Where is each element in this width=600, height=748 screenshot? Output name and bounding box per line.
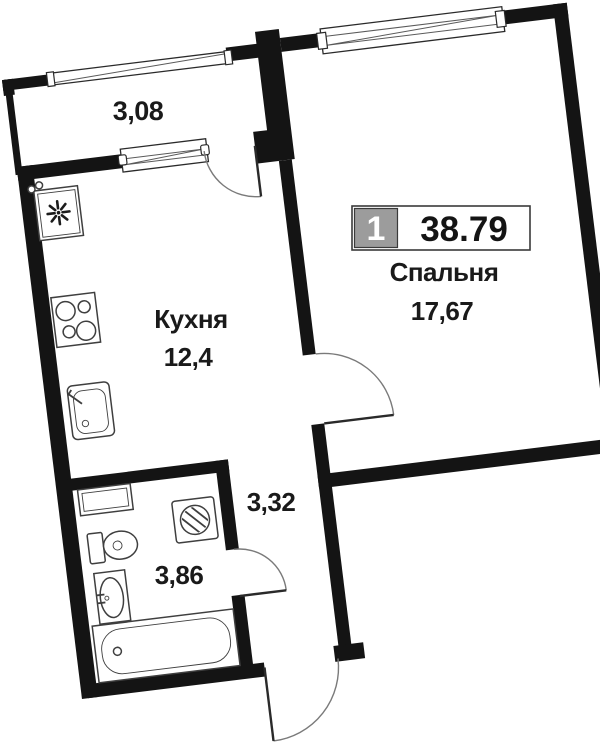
badge-unit-number: 1 — [367, 210, 386, 248]
toilet-tank — [87, 532, 106, 564]
unit-badge: 1 38.79 — [352, 206, 530, 250]
tap-knob-icon — [35, 181, 43, 189]
window-post — [46, 72, 55, 87]
window-glazing-line — [52, 54, 228, 83]
badge-total-area: 38.79 — [420, 210, 508, 249]
door-leaf — [240, 590, 287, 596]
window-post — [317, 32, 328, 49]
window-post — [118, 155, 127, 166]
wall-interior-lower — [311, 423, 351, 649]
stove — [51, 292, 101, 347]
bedroom-area-label: 17,67 — [411, 296, 474, 326]
hallway-area-label: 3,32 — [247, 487, 296, 517]
kitchen-area-label: 12,4 — [164, 342, 214, 372]
door-arc-icon — [234, 544, 286, 596]
plan-geometry — [0, 0, 600, 748]
bathroom-area-label: 3,86 — [155, 560, 204, 590]
stove-icon — [51, 292, 101, 347]
wall-interior-upper — [279, 159, 316, 355]
bedroom-name-label: Спальня — [390, 257, 499, 287]
door-leaf — [324, 415, 393, 424]
window-post — [224, 50, 233, 65]
burner — [78, 300, 91, 313]
wall-bathroom-top — [67, 459, 229, 491]
balcony-door — [204, 145, 261, 203]
washing-machine — [170, 496, 221, 550]
toilet-icon — [102, 529, 139, 561]
kitchen-name-label: Кухня — [154, 304, 227, 334]
door-arc-icon — [316, 345, 394, 423]
kitchen-sink-icon — [67, 381, 115, 440]
walls — [0, 0, 600, 699]
drain — [113, 647, 122, 656]
door-arc-icon — [265, 658, 347, 740]
window-icon — [120, 139, 208, 172]
wall-right — [553, 3, 600, 453]
burner — [62, 325, 75, 338]
wall-bedroom-bottom — [317, 437, 600, 488]
toilet — [87, 528, 139, 564]
floor-plan-svg: 3,08 Кухня 12,4 Спальня 17,67 3,32 3,86 … — [0, 0, 600, 748]
bedroom-window — [316, 6, 507, 54]
balcony-area-label: 3,08 — [113, 96, 164, 126]
tap-knob-icon — [28, 185, 36, 193]
bathroom-door — [234, 544, 286, 596]
door-leaf — [265, 668, 274, 741]
washbasin — [94, 570, 131, 624]
bedroom-door — [316, 345, 394, 423]
door-arc-icon — [204, 145, 261, 203]
wall — [280, 33, 322, 52]
kitchen-sink — [67, 381, 115, 440]
floor-plan: 3,08 Кухня 12,4 Спальня 17,67 3,32 3,86 … — [0, 0, 600, 748]
window-post — [495, 10, 506, 27]
entrance-door — [265, 658, 347, 740]
balcony-parapet-window — [46, 50, 232, 87]
bathroom-cabinet — [77, 484, 133, 516]
kitchen-window — [117, 139, 210, 173]
